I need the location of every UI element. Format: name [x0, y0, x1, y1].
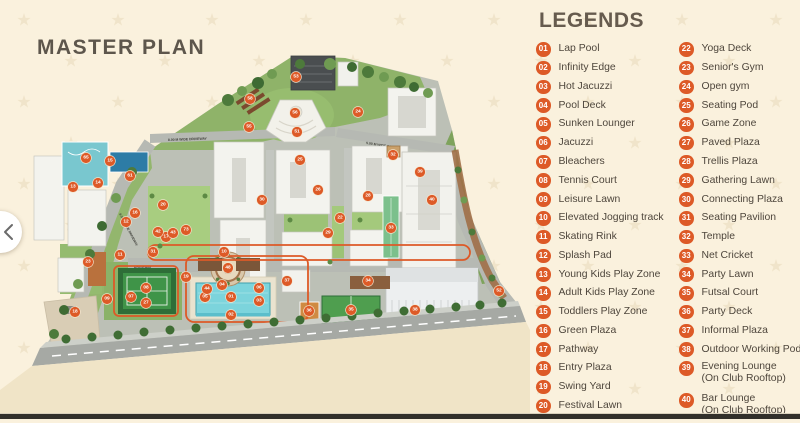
svg-text:34: 34	[365, 278, 371, 284]
svg-text:65: 65	[83, 155, 89, 161]
svg-text:61: 61	[127, 173, 133, 179]
svg-text:06: 06	[256, 285, 262, 291]
plan-marker-58: 58	[245, 94, 256, 105]
bottom-strip	[0, 413, 800, 419]
plan-marker-08: 08	[141, 283, 152, 294]
svg-text:22: 22	[337, 215, 343, 221]
svg-text:33: 33	[388, 225, 394, 231]
plan-marker-28: 28	[363, 191, 374, 202]
svg-text:10: 10	[221, 249, 227, 255]
plan-marker-51: 51	[292, 127, 303, 138]
plan-marker-61: 61	[125, 171, 136, 182]
plan-marker-30: 30	[257, 195, 268, 206]
svg-text:32: 32	[390, 152, 396, 158]
svg-text:02: 02	[228, 312, 234, 318]
master-plan-title: MASTER PLAN	[37, 36, 205, 60]
svg-text:36: 36	[306, 308, 312, 314]
plan-marker-73: 73	[181, 225, 192, 236]
plan-marker-65: 65	[81, 153, 92, 164]
plan-marker-15: 15	[105, 156, 116, 167]
svg-text:29: 29	[325, 230, 331, 236]
svg-text:14: 14	[95, 180, 101, 186]
plan-marker-39: 39	[415, 167, 426, 178]
svg-text:42: 42	[155, 229, 161, 235]
svg-text:73: 73	[183, 227, 189, 233]
svg-text:25: 25	[297, 157, 303, 163]
plan-marker-20: 20	[158, 200, 169, 211]
plan-marker-35: 35	[346, 305, 357, 316]
svg-text:30: 30	[259, 197, 265, 203]
plan-marker-25: 25	[295, 155, 306, 166]
svg-text:20: 20	[160, 202, 166, 208]
chevron-left-icon	[1, 222, 17, 242]
plan-marker-19: 19	[181, 272, 192, 283]
svg-text:51: 51	[294, 129, 300, 135]
plan-marker-29: 29	[323, 228, 334, 239]
plan-marker-26: 26	[313, 185, 324, 196]
plan-marker-37: 37	[282, 276, 293, 287]
svg-text:13: 13	[70, 184, 76, 190]
plan-marker-32: 32	[388, 150, 399, 161]
svg-text:55: 55	[246, 124, 252, 130]
svg-text:35: 35	[348, 307, 354, 313]
svg-text:48: 48	[225, 265, 231, 271]
plan-marker-18: 18	[70, 307, 81, 318]
svg-text:37: 37	[284, 278, 290, 284]
svg-text:23: 23	[85, 259, 91, 265]
plan-marker-52: 52	[494, 286, 505, 297]
plan-marker-06: 06	[254, 283, 265, 294]
plan-marker-16: 16	[130, 208, 141, 219]
plan-marker-22: 22	[335, 213, 346, 224]
svg-text:16: 16	[132, 210, 138, 216]
svg-text:09: 09	[104, 296, 110, 302]
plan-marker-43: 43	[168, 228, 179, 239]
svg-text:40: 40	[429, 197, 435, 203]
plan-marker-03: 03	[254, 296, 265, 307]
svg-text:39: 39	[417, 169, 423, 175]
plan-marker-48: 48	[223, 263, 234, 274]
plan-marker-09: 09	[102, 294, 113, 305]
plan-marker-42: 42	[153, 227, 164, 238]
legends-title: LEGENDS	[539, 9, 644, 33]
svg-text:26: 26	[315, 187, 321, 193]
svg-text:58: 58	[247, 96, 253, 102]
svg-text:04: 04	[219, 282, 225, 288]
plan-marker-36: 36	[304, 306, 315, 317]
svg-text:19: 19	[183, 274, 189, 280]
plan-marker-13: 13	[68, 182, 79, 193]
plan-marker-40: 40	[427, 195, 438, 206]
svg-text:18: 18	[72, 309, 78, 315]
svg-text:52: 52	[496, 288, 502, 294]
plan-marker-31: 31	[148, 247, 159, 258]
plan-marker-11: 11	[115, 250, 126, 261]
svg-text:27: 27	[143, 300, 149, 306]
plan-marker-14: 14	[93, 178, 104, 189]
plan-marker-38: 38	[410, 305, 421, 316]
svg-text:28: 28	[365, 193, 371, 199]
svg-text:38: 38	[412, 307, 418, 313]
svg-text:44: 44	[204, 286, 210, 292]
svg-text:03: 03	[256, 298, 262, 304]
svg-text:31: 31	[150, 249, 156, 255]
plan-marker-53: 53	[291, 72, 302, 83]
plan-marker-01: 01	[226, 292, 237, 303]
svg-text:11: 11	[117, 252, 122, 258]
plan-marker-56: 56	[290, 108, 301, 119]
plan-marker-44: 44	[202, 284, 213, 295]
plan-marker-24: 24	[353, 107, 364, 118]
plan-marker-34: 34	[363, 276, 374, 287]
master-plan-map: 8.00 M WIDE DRIVEWAY 5.00 M WIDE DRIVEWA…	[0, 0, 530, 419]
plan-marker-07: 07	[126, 292, 137, 303]
clubhouse-building	[402, 152, 456, 268]
svg-text:56: 56	[292, 110, 298, 116]
plan-marker-27: 27	[141, 298, 152, 309]
svg-text:12: 12	[123, 219, 129, 225]
svg-text:24: 24	[355, 109, 361, 115]
svg-text:07: 07	[128, 294, 134, 300]
svg-text:08: 08	[143, 285, 149, 291]
plan-marker-02: 02	[226, 310, 237, 321]
plan-marker-33: 33	[386, 223, 397, 234]
svg-text:43: 43	[170, 230, 176, 236]
plan-marker-04: 04	[217, 280, 228, 291]
plan-marker-55: 55	[244, 122, 255, 133]
plan-marker-23: 23	[83, 257, 94, 268]
plan-marker-12: 12	[121, 217, 132, 228]
svg-text:15: 15	[107, 158, 113, 164]
svg-text:53: 53	[293, 74, 299, 80]
plan-marker-10: 10	[219, 247, 230, 258]
svg-text:01: 01	[228, 294, 234, 300]
